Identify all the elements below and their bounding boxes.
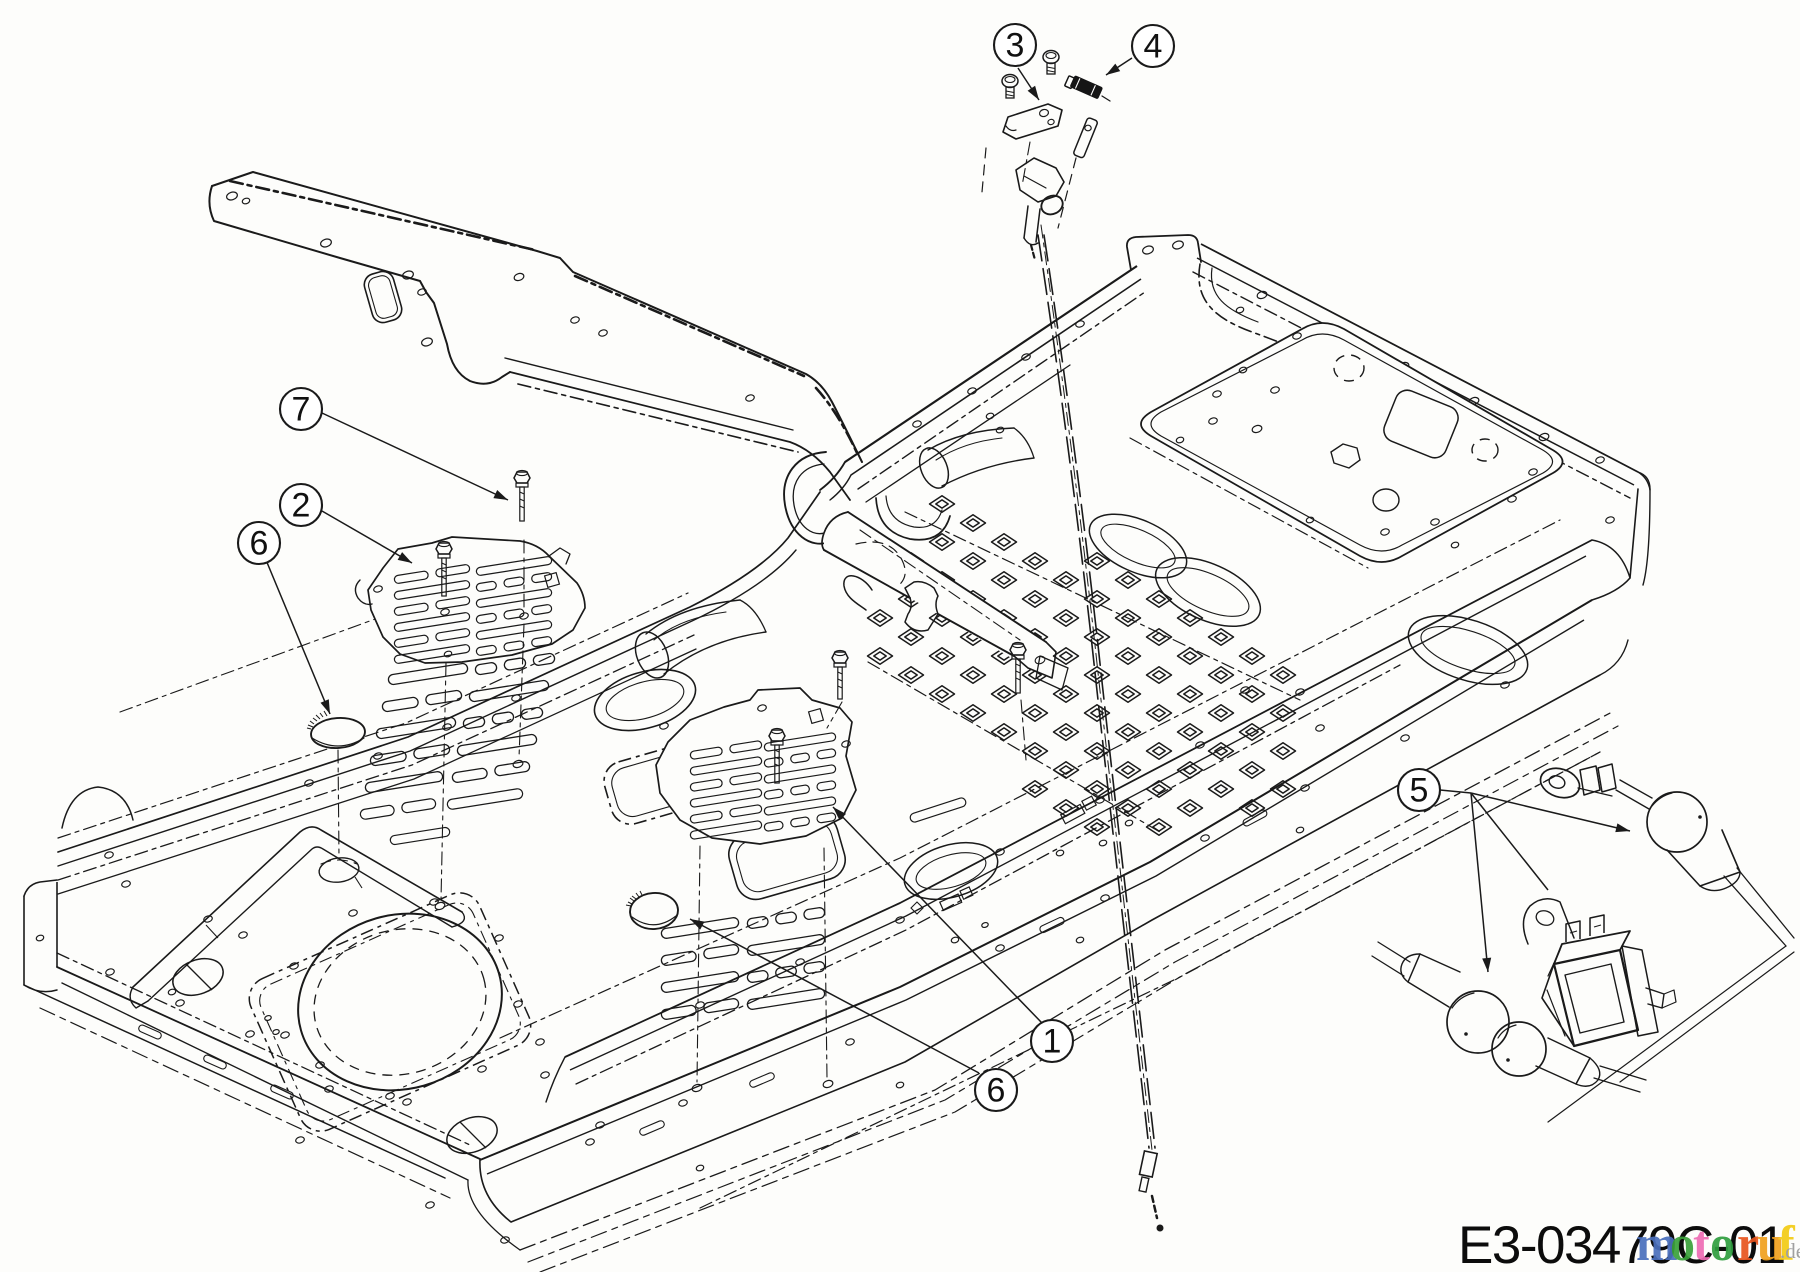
svg-text:6: 6 bbox=[987, 1072, 1006, 1110]
svg-text:o: o bbox=[1670, 1215, 1695, 1271]
svg-text:3: 3 bbox=[1006, 27, 1025, 65]
svg-text:2: 2 bbox=[292, 487, 311, 525]
svg-text:6: 6 bbox=[250, 525, 269, 563]
svg-text:E3-03479C-01: E3-03479C-01 bbox=[1458, 1216, 1785, 1272]
svg-text:7: 7 bbox=[292, 391, 311, 429]
svg-text:.de: .de bbox=[1780, 1239, 1800, 1263]
svg-text:5: 5 bbox=[1410, 772, 1429, 810]
svg-text:1: 1 bbox=[1043, 1023, 1062, 1061]
svg-text:t: t bbox=[1693, 1215, 1710, 1271]
svg-text:r: r bbox=[1737, 1215, 1759, 1271]
svg-text:o: o bbox=[1710, 1215, 1735, 1271]
svg-text:4: 4 bbox=[1144, 28, 1163, 66]
